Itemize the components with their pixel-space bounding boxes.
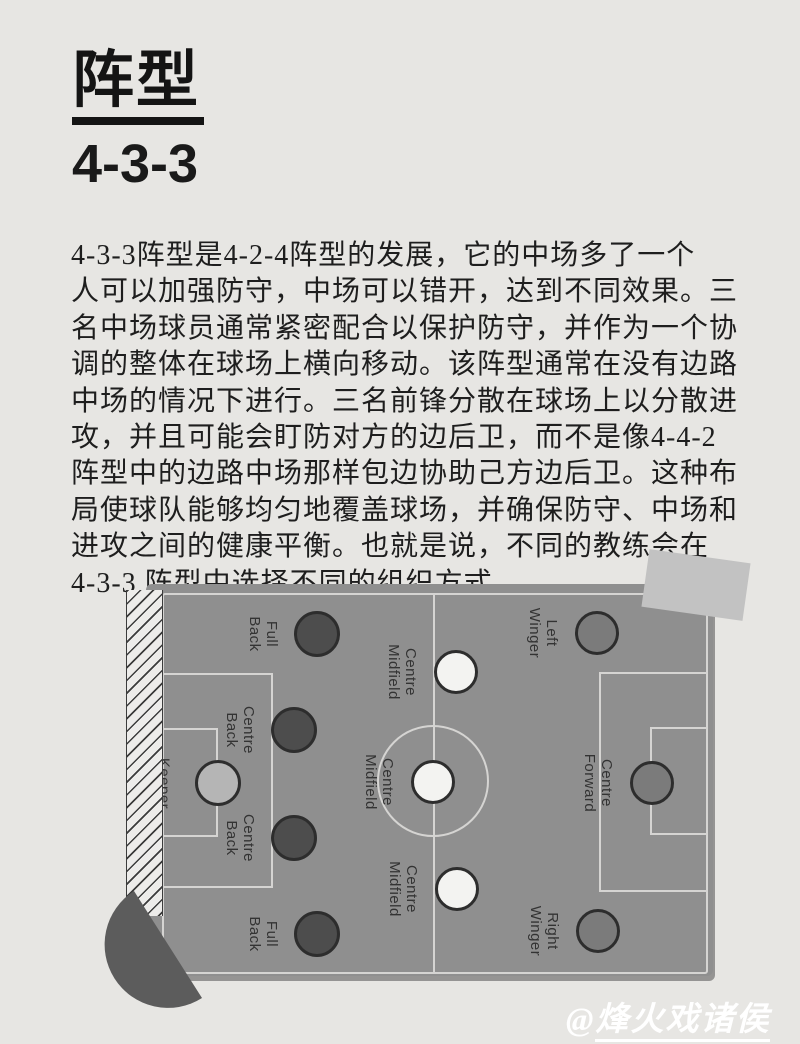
player-circle-full-back-bottom [294,911,340,957]
player-label-full-back-top: FullBack [246,589,280,679]
paragraph-line: 名中场球员通常紧密配合以保护防守，并作为一个协 [71,311,741,347]
page: 阵型 4-3-3 4-3-3阵型是4-2-4阵型的发展，它的中场多了一个人可以加… [0,0,800,1044]
page-title: 阵型 [72,48,204,125]
watermark: @烽火戏诸侯 [566,992,770,1040]
player-label-centre-midfield-bottom: CentreMidfield [386,844,420,934]
player-label-centre-midfield-middle: CentreMidfield [362,737,396,827]
player-circle-centre-midfield-middle [411,760,455,804]
player-label-centre-back-top: CentreBack [223,685,257,775]
paragraph-line: 攻，并且可能会盯防对方的边后卫，而不是像4-4-2 [71,420,741,456]
player-label-centre-midfield-top: CentreMidfield [385,627,419,717]
player-label-centre-forward: CentreForward [581,738,615,828]
player-circle-centre-back-top [271,707,317,753]
paragraph-line: 调的整体在球场上横向移动。该阵型通常在没有边路 [71,347,741,383]
paragraph-line: 局使球队能够均匀地覆盖球场，并确保防守、中场和 [71,493,741,529]
player-circle-centre-back-bottom [271,815,317,861]
paragraph-line: 4-3-3阵型是4-2-4阵型的发展，它的中场多了一个 [71,238,741,274]
paragraph-line: 人可以加强防守，中场可以错开，达到不同效果。三 [71,274,741,310]
paragraph-line: 中场的情况下进行。三名前锋分散在球场上以分散进 [71,384,741,420]
page-header: 阵型 4-3-3 [72,48,204,191]
quarter-circle-shape [105,891,202,1008]
paragraph-line: 进攻之间的健康平衡。也就是说，不同的教练会在 [71,529,741,565]
player-label-right-winger: RightWinger [527,886,561,976]
goal-hatch-strip [126,590,163,916]
player-circle-centre-forward [630,761,674,805]
pitch: KeeperFullBackCentreBackCentreBackFullBa… [146,584,713,976]
quarter-circle-decoration [100,878,212,1010]
player-label-centre-back-bottom: CentreBack [223,793,257,883]
player-circle-right-winger [576,909,620,953]
player-circle-centre-midfield-bottom [435,867,479,911]
formation-heading: 4-3-3 [72,137,204,191]
player-circle-full-back-top [294,611,340,657]
article-paragraph: 4-3-3阵型是4-2-4阵型的发展，它的中场多了一个人可以加强防守，中场可以错… [71,238,741,602]
watermark-name: 烽火戏诸侯 [595,1002,770,1042]
player-circle-centre-midfield-top [434,650,478,694]
watermark-at: @ [566,1002,595,1038]
player-label-left-winger: LeftWinger [526,588,560,678]
player-label-full-back-bottom: FullBack [246,889,280,979]
paragraph-line: 阵型中的边路中场那样包边协助己方边后卫。这种布 [71,456,741,492]
player-circle-left-winger [575,611,619,655]
